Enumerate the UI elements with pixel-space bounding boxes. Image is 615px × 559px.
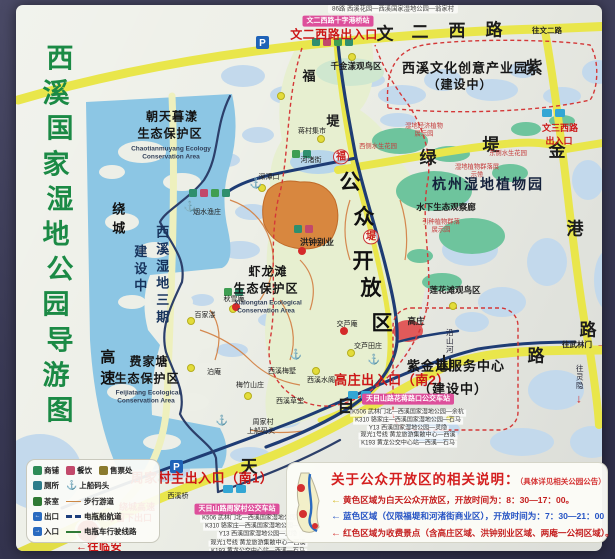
dock-anchor-icon: ⚓: [216, 415, 228, 426]
poi-label: 千金漾观鸟区: [330, 62, 381, 72]
poi-label: 西溪草堂: [276, 398, 304, 406]
legend-item: 商铺: [33, 465, 59, 476]
notice-line-arrow: ←: [331, 495, 341, 506]
legend-item-label: 电瓶车行驶线路: [84, 526, 137, 537]
dock-anchor-icon: ⚓: [368, 354, 380, 365]
area-title: 西溪文化创意产业园: [402, 62, 528, 77]
legend-item: 茶室: [33, 496, 59, 507]
open-area-title-char: 众: [354, 206, 375, 230]
open-area-title-char: 区: [372, 312, 393, 336]
poi-label: 周家村: [253, 419, 274, 427]
area-title-en: Conservation Area: [142, 153, 200, 160]
legend-row: 茶室步行游道: [33, 496, 153, 507]
exhibit-label: 西侧水生花园: [359, 143, 397, 151]
exhibit-label: 湿地经济植物展示园: [404, 122, 444, 137]
area-title: 紫金港服务中心: [407, 360, 505, 375]
road-name-char: 文: [377, 24, 394, 43]
road-name-char: 紫: [526, 58, 543, 77]
poi-label: 烟水渔庄: [193, 209, 221, 217]
exhibit-label: 引种植物群落展示园: [420, 218, 462, 233]
direction-arrow: ↓: [576, 392, 582, 405]
legend-item: ⚓上船码头: [66, 480, 109, 491]
legend-row: 商铺餐饮售票处: [33, 465, 153, 476]
notice-title-suffix: （具体详见相关公园公告）: [520, 477, 606, 486]
notice-header: 关于公众开放区的相关说明：（具体详见相关公园公告）: [331, 468, 601, 489]
area-title: 生态保护区: [114, 372, 179, 385]
notice-line: ←蓝色区域（仅限福堤和河渚街商业区），开放时间为：7：30—21：00: [331, 510, 601, 522]
vertical-label: 西溪湿地三期: [154, 225, 169, 327]
ticket-icon: [99, 466, 108, 475]
legend-item: 电瓶车行驶线路: [66, 526, 137, 537]
dock-anchor-icon: ⚓: [250, 178, 262, 189]
food-icon: [66, 466, 75, 475]
bus-route-line: K193 黄龙公交中心站—西溪—石马: [209, 548, 307, 555]
poi-label: 洪钟别业: [300, 238, 334, 248]
bus-route-line: K506 武林门北—西溪国家湿地公园—余杭: [350, 410, 466, 417]
causeway-marker: 福: [333, 149, 349, 164]
road-name-char: 西: [449, 21, 466, 40]
direction-label: 往武林门: [562, 341, 592, 349]
road-name-char: 港: [567, 219, 584, 238]
vertical-road-label: 绕城: [110, 202, 125, 240]
map-title-char: 家: [43, 142, 70, 181]
legend-item: 餐饮: [66, 465, 92, 476]
poi-label: 交芦田庄: [354, 343, 382, 351]
dock-anchor-icon: ⚓: [184, 201, 196, 212]
road-name-char: 路: [528, 346, 545, 365]
direction-label: 往文二路: [532, 27, 562, 35]
path-line-swatch: [66, 501, 81, 502]
bus-route-note: 86路 西溪花园—西溪国家湿地公园—翁家村: [328, 4, 458, 13]
bus-route-line: K310 骆家庄—西溪国家湿地公园—石马: [353, 417, 463, 424]
poi-label: 秋雪庵: [224, 296, 245, 304]
open-area-title-char: 公: [340, 171, 361, 195]
public-open-area-notice: 关于公众开放区的相关说明：（具体详见相关公园公告） ←黄色区域为白天公众开放区，…: [286, 462, 608, 543]
poi-label: 泊庵: [207, 369, 221, 377]
map-title-char: 图: [47, 389, 74, 428]
poi-label: 交芦庵: [337, 321, 358, 329]
legend-item: →入口: [33, 526, 59, 537]
toilet-icon: [33, 481, 42, 490]
anchor-icon: ⚓: [66, 480, 77, 491]
legend-item: ←出口: [33, 511, 59, 522]
poi-label: 百家溇: [195, 312, 216, 320]
area-title-en: Feijiatang Ecological: [116, 389, 181, 396]
notice-line-arrow: ←: [331, 528, 341, 539]
notice-title: 关于公众开放区的相关说明：: [331, 472, 520, 487]
map-title-char: 溪: [43, 72, 70, 111]
bus-route-line: K193 黄龙公交中心站—西溪—石马: [359, 441, 457, 448]
map-title-char: 园: [43, 283, 70, 322]
map-title-char: 地: [43, 213, 70, 252]
map-title-char: 国: [47, 107, 74, 146]
poi-label: 水下生态观察廊: [416, 203, 476, 213]
boat-line-swatch: [66, 515, 81, 518]
dock-anchor-icon: ⚓: [290, 349, 302, 360]
area-title-en: Conservation Area: [117, 397, 175, 404]
exit-icon: ←: [33, 512, 42, 521]
bus-route-line: 观光1号线 黄龙旅游集散中心—西溪: [358, 433, 457, 440]
vertical-label: 往灵隐: [575, 364, 583, 390]
legend-box: 商铺餐饮售票处厕所⚓上船码头茶室步行游道←出口电瓶船航道→入口电瓶车行驶线路: [26, 459, 160, 543]
poi-label: 莲花滩观鸟区: [429, 286, 480, 296]
legend-item: 售票处: [99, 465, 133, 476]
shop-icon: [33, 466, 42, 475]
notice-line-text: 黄色区域为白天公众开放区，开放时间为：8：30—17：00。: [343, 495, 574, 505]
bus-stop-badge: 天目山路周家村公交车站: [195, 504, 280, 515]
legend-row: ←出口电瓶船航道: [33, 511, 153, 522]
entrance-label: 文三西路: [542, 123, 578, 133]
poi-label: 蒋村集市: [298, 128, 326, 136]
notice-lines: ←黄色区域为白天公众开放区，开放时间为：8：30—17：00。←蓝色区域（仅限福…: [331, 494, 601, 539]
poi-label: 西溪水阁: [307, 377, 335, 385]
causeway-marker: 堤: [363, 229, 379, 244]
legend-row: →入口电瓶车行驶线路: [33, 526, 153, 537]
poi-label: 梅竹山庄: [236, 382, 264, 390]
photo-of-park-map-sign: P P 86路 西溪花园—西溪国家湿地公园—翁家村文二西路十字港桥站文二西路出入…: [0, 0, 615, 559]
bus-stop-badge: 天目山路花蒋路口公交车站: [362, 394, 454, 405]
area-title-en: Conservation Area: [237, 307, 295, 314]
cart-line-swatch: [66, 531, 81, 533]
map-title-char: 游: [43, 353, 70, 392]
legend-item-label: 上船码头: [79, 480, 109, 491]
area-title: 生态保护区: [137, 127, 202, 140]
legend-item: 电瓶船航道: [66, 511, 122, 522]
area-title-en: Chaotianmuyang Ecology: [131, 145, 211, 152]
area-title: 生态保护区: [233, 282, 298, 295]
causeway-name-char: 福: [302, 70, 315, 85]
legend-item: 厕所: [33, 480, 59, 491]
exhibit-label: 东侧水生花园: [489, 150, 527, 158]
legend-item: 步行游道: [66, 496, 114, 507]
legend-item-label: 步行游道: [84, 496, 114, 507]
map-title-char: 公: [47, 248, 74, 287]
open-area-title-char: 开: [353, 250, 374, 274]
vertical-label: 建设中: [132, 245, 147, 296]
legend-item-label: 茶室: [44, 496, 59, 507]
legend-item-label: 出口: [44, 511, 59, 522]
poi-label: 河渚街: [301, 157, 322, 165]
map-title-char: 湿: [47, 177, 74, 216]
area-title: （建设中）: [427, 78, 492, 91]
causeway-name-char: 堤: [326, 115, 339, 130]
legend-item-label: 售票处: [110, 465, 133, 476]
area-title: 朝天暮漾: [146, 110, 198, 123]
poi-label: 上船码头: [247, 428, 275, 436]
enter-icon: →: [33, 527, 42, 536]
legend-item-label: 入口: [44, 526, 59, 537]
map-title-char: 导: [47, 318, 74, 357]
legend-item-label: 商铺: [44, 465, 59, 476]
notice-inset-minimap: [291, 471, 329, 535]
bus-route-line: Y13 西溪国家湿地公园—灵隐: [367, 425, 449, 432]
entrance-label: 文二西路出入口: [290, 28, 378, 41]
poi-label: 西溪梅墅: [268, 368, 296, 376]
bus-stop-badge: 文二西路十字港桥站: [303, 16, 374, 27]
poi-label: 西溪桥: [168, 493, 189, 501]
tea-icon: [33, 497, 42, 506]
legend-row: 厕所⚓上船码头: [33, 480, 153, 491]
legend-item-label: 电瓶船航道: [84, 511, 122, 522]
map-title-char: 西: [47, 37, 74, 76]
road-name-char: 绿: [420, 148, 437, 167]
vertical-label: 沿山河: [445, 328, 453, 354]
notice-line: ←红色区域为收费景点（含高庄区域、洪钟别业区域、两庵一公祠区域）。: [331, 527, 601, 539]
legend-item-label: 厕所: [44, 480, 59, 491]
entrance-label: 出入口: [545, 136, 572, 146]
open-area-title-char: 放: [361, 277, 382, 301]
road-name-char: 路: [580, 320, 597, 339]
area-title: 虾龙滩: [248, 265, 287, 278]
poi-label: 高庄: [407, 317, 424, 327]
notice-line-text: 红色区域为收费景点（含高庄区域、洪钟别业区域、两庵一公祠区域）。: [343, 528, 614, 538]
vertical-road-label: 高速: [98, 349, 115, 391]
area-title: 费家塘: [129, 355, 168, 368]
road-name-char: 路: [486, 20, 503, 39]
notice-line-arrow: ←: [331, 511, 341, 522]
legend-item-label: 餐饮: [77, 465, 92, 476]
road-name-char: 二: [412, 22, 429, 41]
notice-line-text: 蓝色区域（仅限福堤和河渚街商业区），开放时间为：7：30—21：00: [343, 511, 604, 521]
garden-title: 杭州湿地植物园: [432, 177, 544, 193]
notice-line: ←黄色区域为白天公众开放区，开放时间为：8：30—17：00。: [331, 494, 601, 506]
